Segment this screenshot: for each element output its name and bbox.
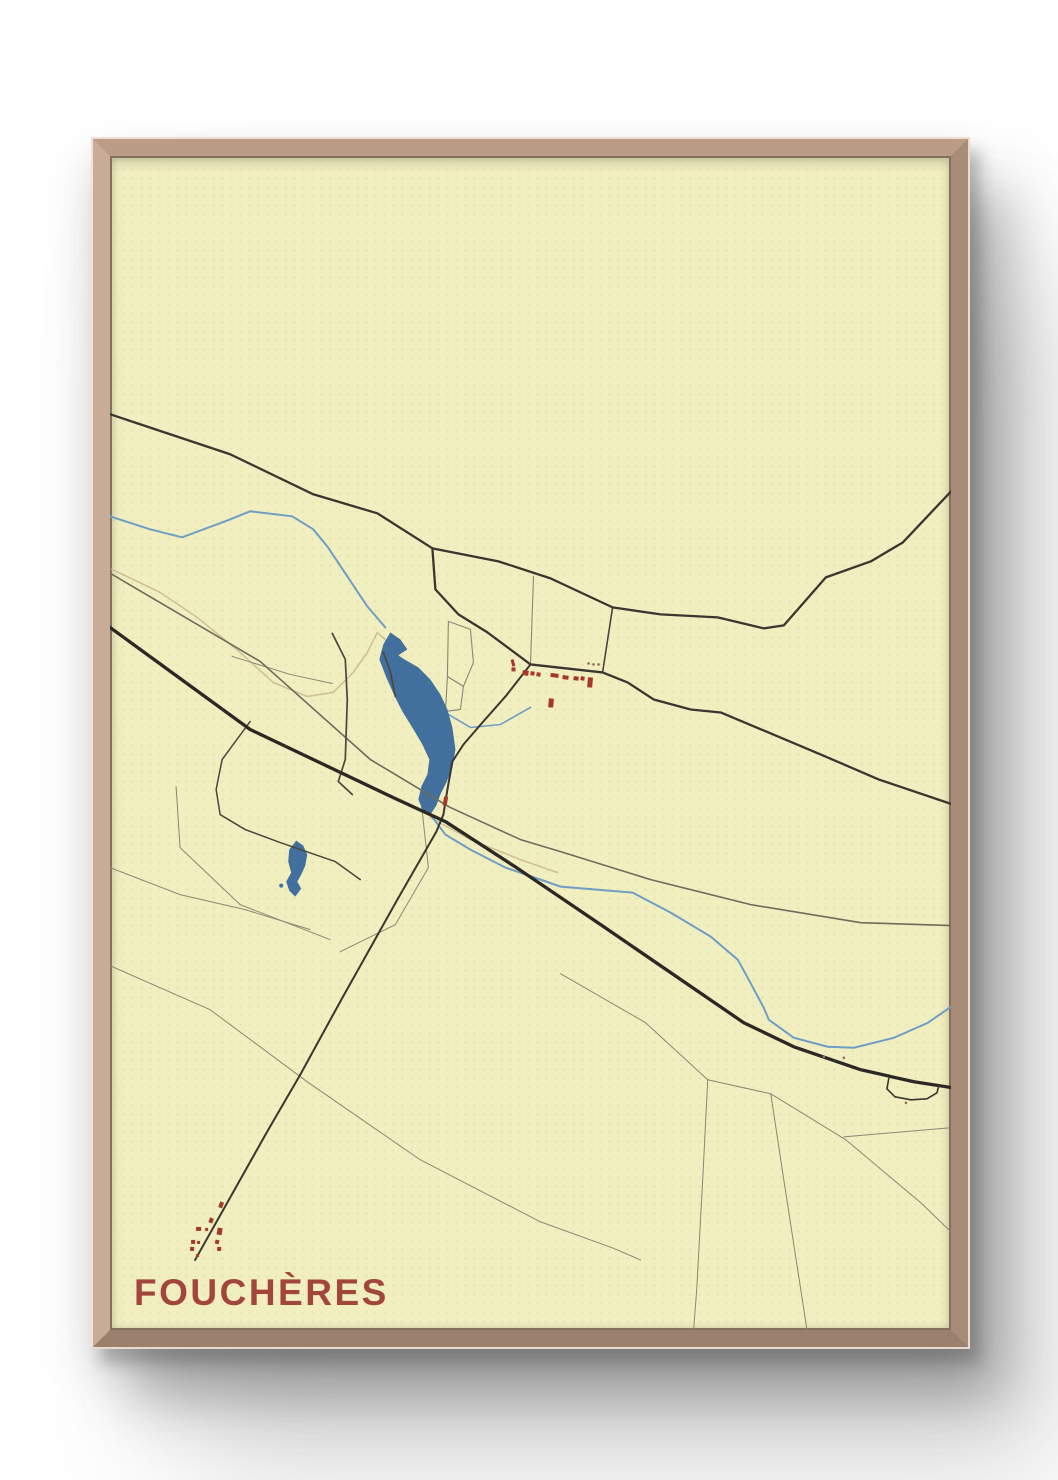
specks bbox=[592, 663, 595, 666]
field-line-l2 bbox=[694, 1080, 708, 1329]
road-d2 bbox=[603, 607, 613, 672]
buildings-southwest bbox=[196, 1254, 199, 1257]
specks bbox=[905, 1102, 908, 1105]
field-line-pond-east bbox=[340, 795, 428, 952]
buildings-northeast bbox=[511, 667, 515, 671]
field-line-l4 bbox=[110, 966, 641, 1260]
buildings-southwest bbox=[197, 1241, 200, 1244]
buildings-southwest bbox=[191, 1240, 195, 1244]
buildings-southwest bbox=[190, 1247, 194, 1251]
parcel-a bbox=[447, 621, 473, 686]
road-highway bbox=[110, 627, 951, 1087]
buildings-southwest bbox=[217, 1247, 221, 1251]
poster-frame: FOUCHÈRES bbox=[91, 137, 970, 1349]
buildings-northeast bbox=[522, 670, 529, 676]
field-line-pond-west bbox=[176, 787, 330, 940]
field-line-d1 bbox=[531, 576, 534, 664]
tributary bbox=[448, 707, 530, 727]
specks bbox=[823, 1055, 826, 1058]
field-line-west bbox=[232, 656, 332, 683]
river-upper bbox=[110, 511, 385, 627]
buildings-northeast bbox=[562, 675, 569, 680]
buildings-northeast bbox=[536, 672, 541, 677]
map-area: FOUCHÈRES bbox=[110, 156, 951, 1330]
buildings-southwest bbox=[205, 1228, 208, 1231]
field-line-l1 bbox=[561, 974, 708, 1080]
map-svg bbox=[110, 156, 951, 1330]
specks bbox=[587, 662, 590, 665]
road-village bbox=[432, 548, 951, 804]
path-loop-west-of-lake bbox=[112, 569, 390, 696]
field-line-l1a bbox=[708, 1080, 951, 1232]
buildings-northeast bbox=[548, 698, 554, 707]
road-bend-s4 bbox=[216, 721, 360, 879]
buildings-southwest bbox=[218, 1201, 224, 1208]
buildings-northeast bbox=[511, 659, 516, 667]
buildings-southwest bbox=[208, 1217, 213, 1223]
road-north bbox=[110, 414, 951, 628]
buildings-northeast bbox=[580, 676, 585, 681]
buildings-northeast bbox=[443, 796, 449, 806]
field-line-l6 bbox=[844, 1128, 949, 1137]
buildings-southwest bbox=[215, 1239, 220, 1244]
buildings-southwest bbox=[217, 1228, 223, 1236]
specks bbox=[843, 1056, 846, 1059]
field-line-l2a bbox=[771, 1094, 807, 1329]
buildings-southwest bbox=[196, 1227, 201, 1231]
pond-dot bbox=[279, 884, 283, 888]
buildings-northeast bbox=[530, 671, 535, 676]
parcel-b bbox=[445, 676, 463, 711]
page-background: { "poster": { "title": "FOUCHÈRES" }, "c… bbox=[0, 0, 1058, 1480]
buildings-northeast bbox=[573, 676, 579, 681]
buildings-northeast bbox=[550, 673, 558, 678]
poster-title: FOUCHÈRES bbox=[134, 1272, 389, 1314]
river-lower bbox=[430, 815, 951, 1048]
buildings-northeast bbox=[587, 677, 593, 687]
specks bbox=[597, 663, 600, 666]
